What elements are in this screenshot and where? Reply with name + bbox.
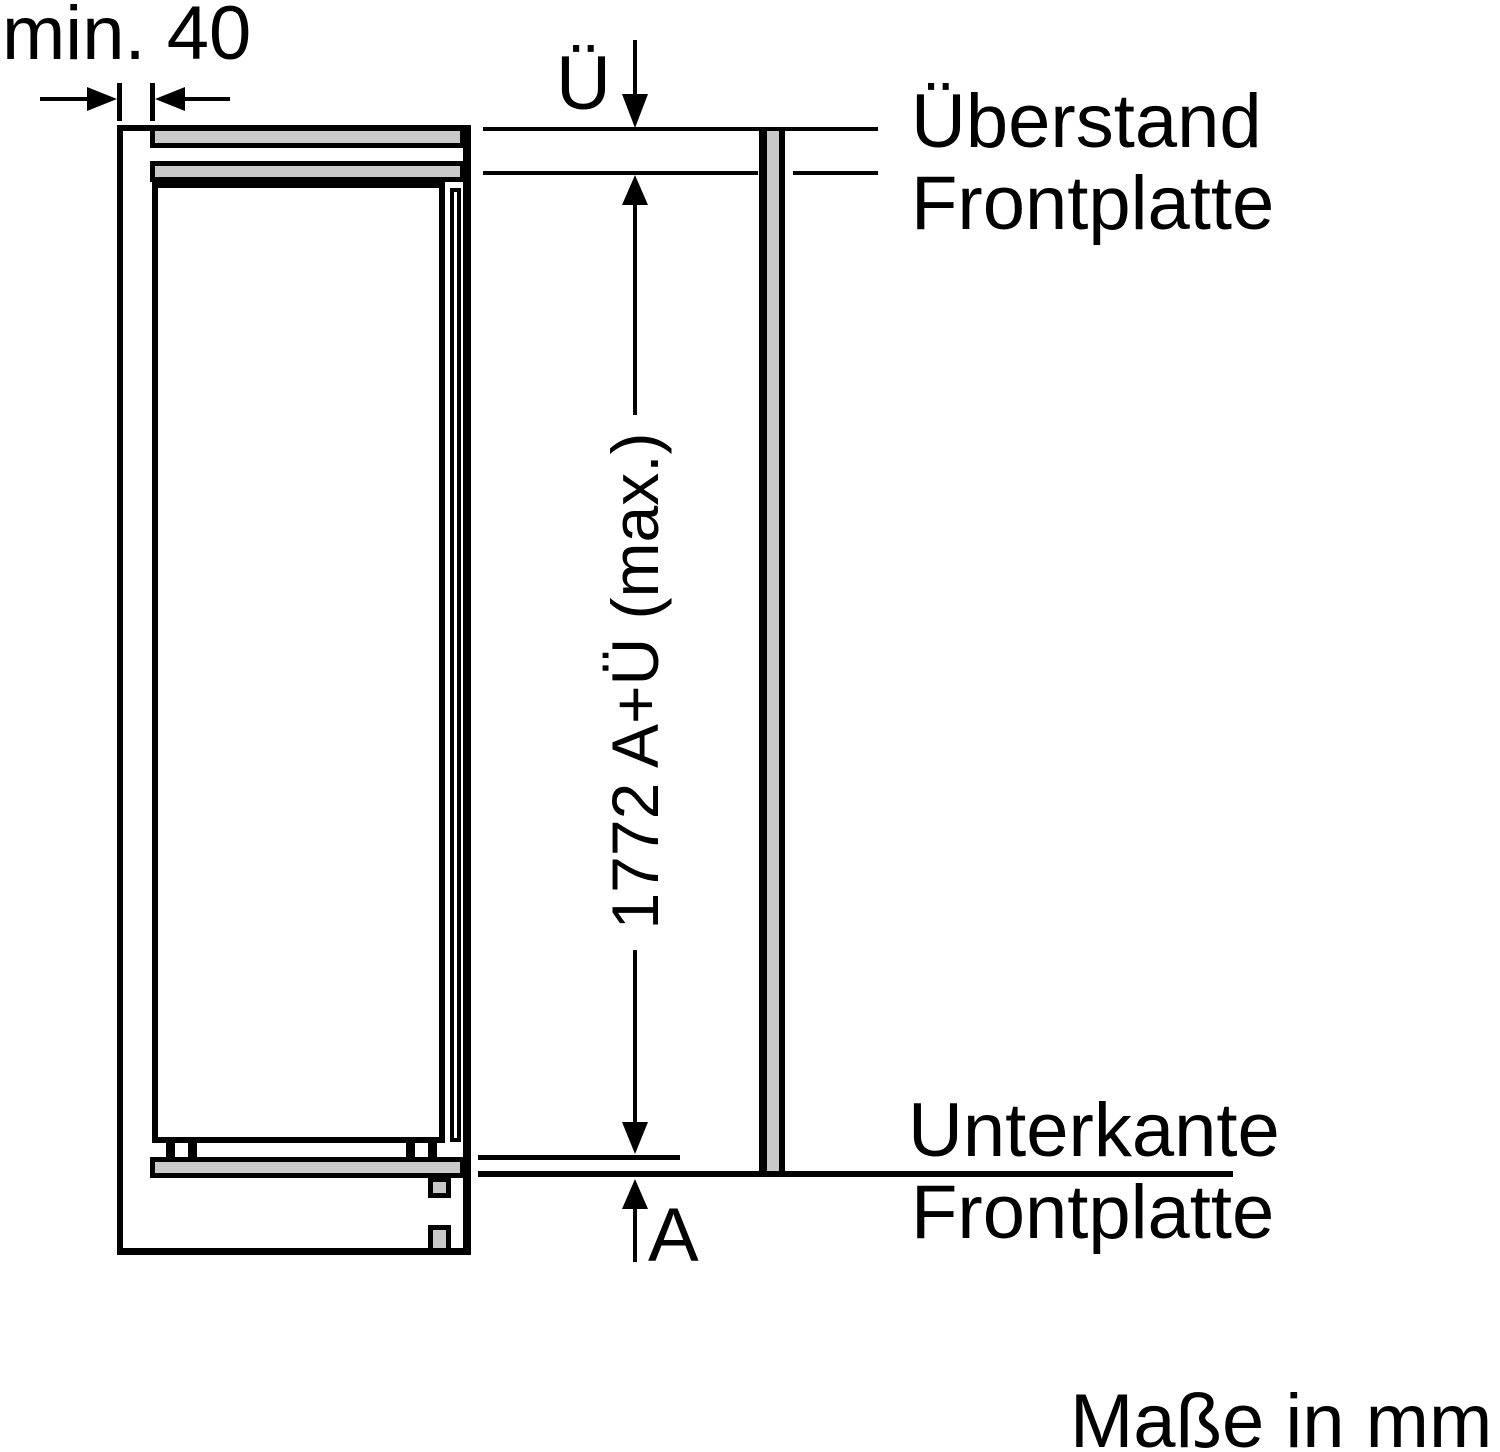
wall-clearance-label: min. 40 [2, 0, 251, 72]
appliance-foot-left [166, 1143, 197, 1158]
overhang-dim-stem [633, 40, 637, 96]
dim-arrow-left-icon [155, 87, 185, 111]
dimension-drawing: min. 40 Ü 1772 A+Ü (max.) A Überstand Fr… [0, 0, 1500, 1452]
niche-top-extension-left [483, 171, 758, 175]
bottom-edge-label-line1: Unterkante [908, 1093, 1280, 1169]
top-trim-panel [150, 126, 465, 148]
top-edge-extension-right [785, 127, 878, 131]
dim-arrow-down2-icon [622, 1122, 648, 1154]
cabinet-bottom-line [117, 1248, 471, 1255]
adjuster-block-lower [428, 1225, 451, 1253]
appliance-foot-right [406, 1143, 437, 1158]
appliance-door [450, 188, 461, 1142]
niche-height-label: 1772 A+Ü (max.) [602, 432, 668, 929]
extension-tick-wall [117, 83, 122, 121]
adjuster-block-upper [428, 1177, 451, 1198]
dim-arrow-right-icon [87, 87, 117, 111]
front-panel [759, 127, 785, 1177]
appliance-body [152, 182, 445, 1143]
niche-bottom-line [478, 1155, 680, 1160]
a-dim-symbol: A [648, 1198, 699, 1274]
upper-trim-panel [150, 161, 465, 182]
adjacent-wall-line [117, 125, 123, 1255]
dim-line-left [40, 97, 90, 101]
overhang-label-line1: Überstand [911, 84, 1262, 160]
a-dim-stem [633, 1205, 637, 1262]
dim-arrow-down-icon [622, 94, 648, 128]
bottom-edge-label-line2: Frontplatte [911, 1175, 1274, 1251]
niche-height-stem-top [633, 200, 637, 415]
plinth-panel [150, 1157, 465, 1178]
top-edge-extension-left [483, 127, 759, 131]
cabinet-right-line [463, 125, 471, 1255]
overhang-symbol: Ü [556, 46, 611, 122]
units-note: Maße in mm [1070, 1384, 1492, 1452]
niche-height-stem-bottom [633, 950, 637, 1122]
niche-top-extension-right [793, 171, 878, 175]
overhang-label-line2: Frontplatte [911, 166, 1274, 242]
